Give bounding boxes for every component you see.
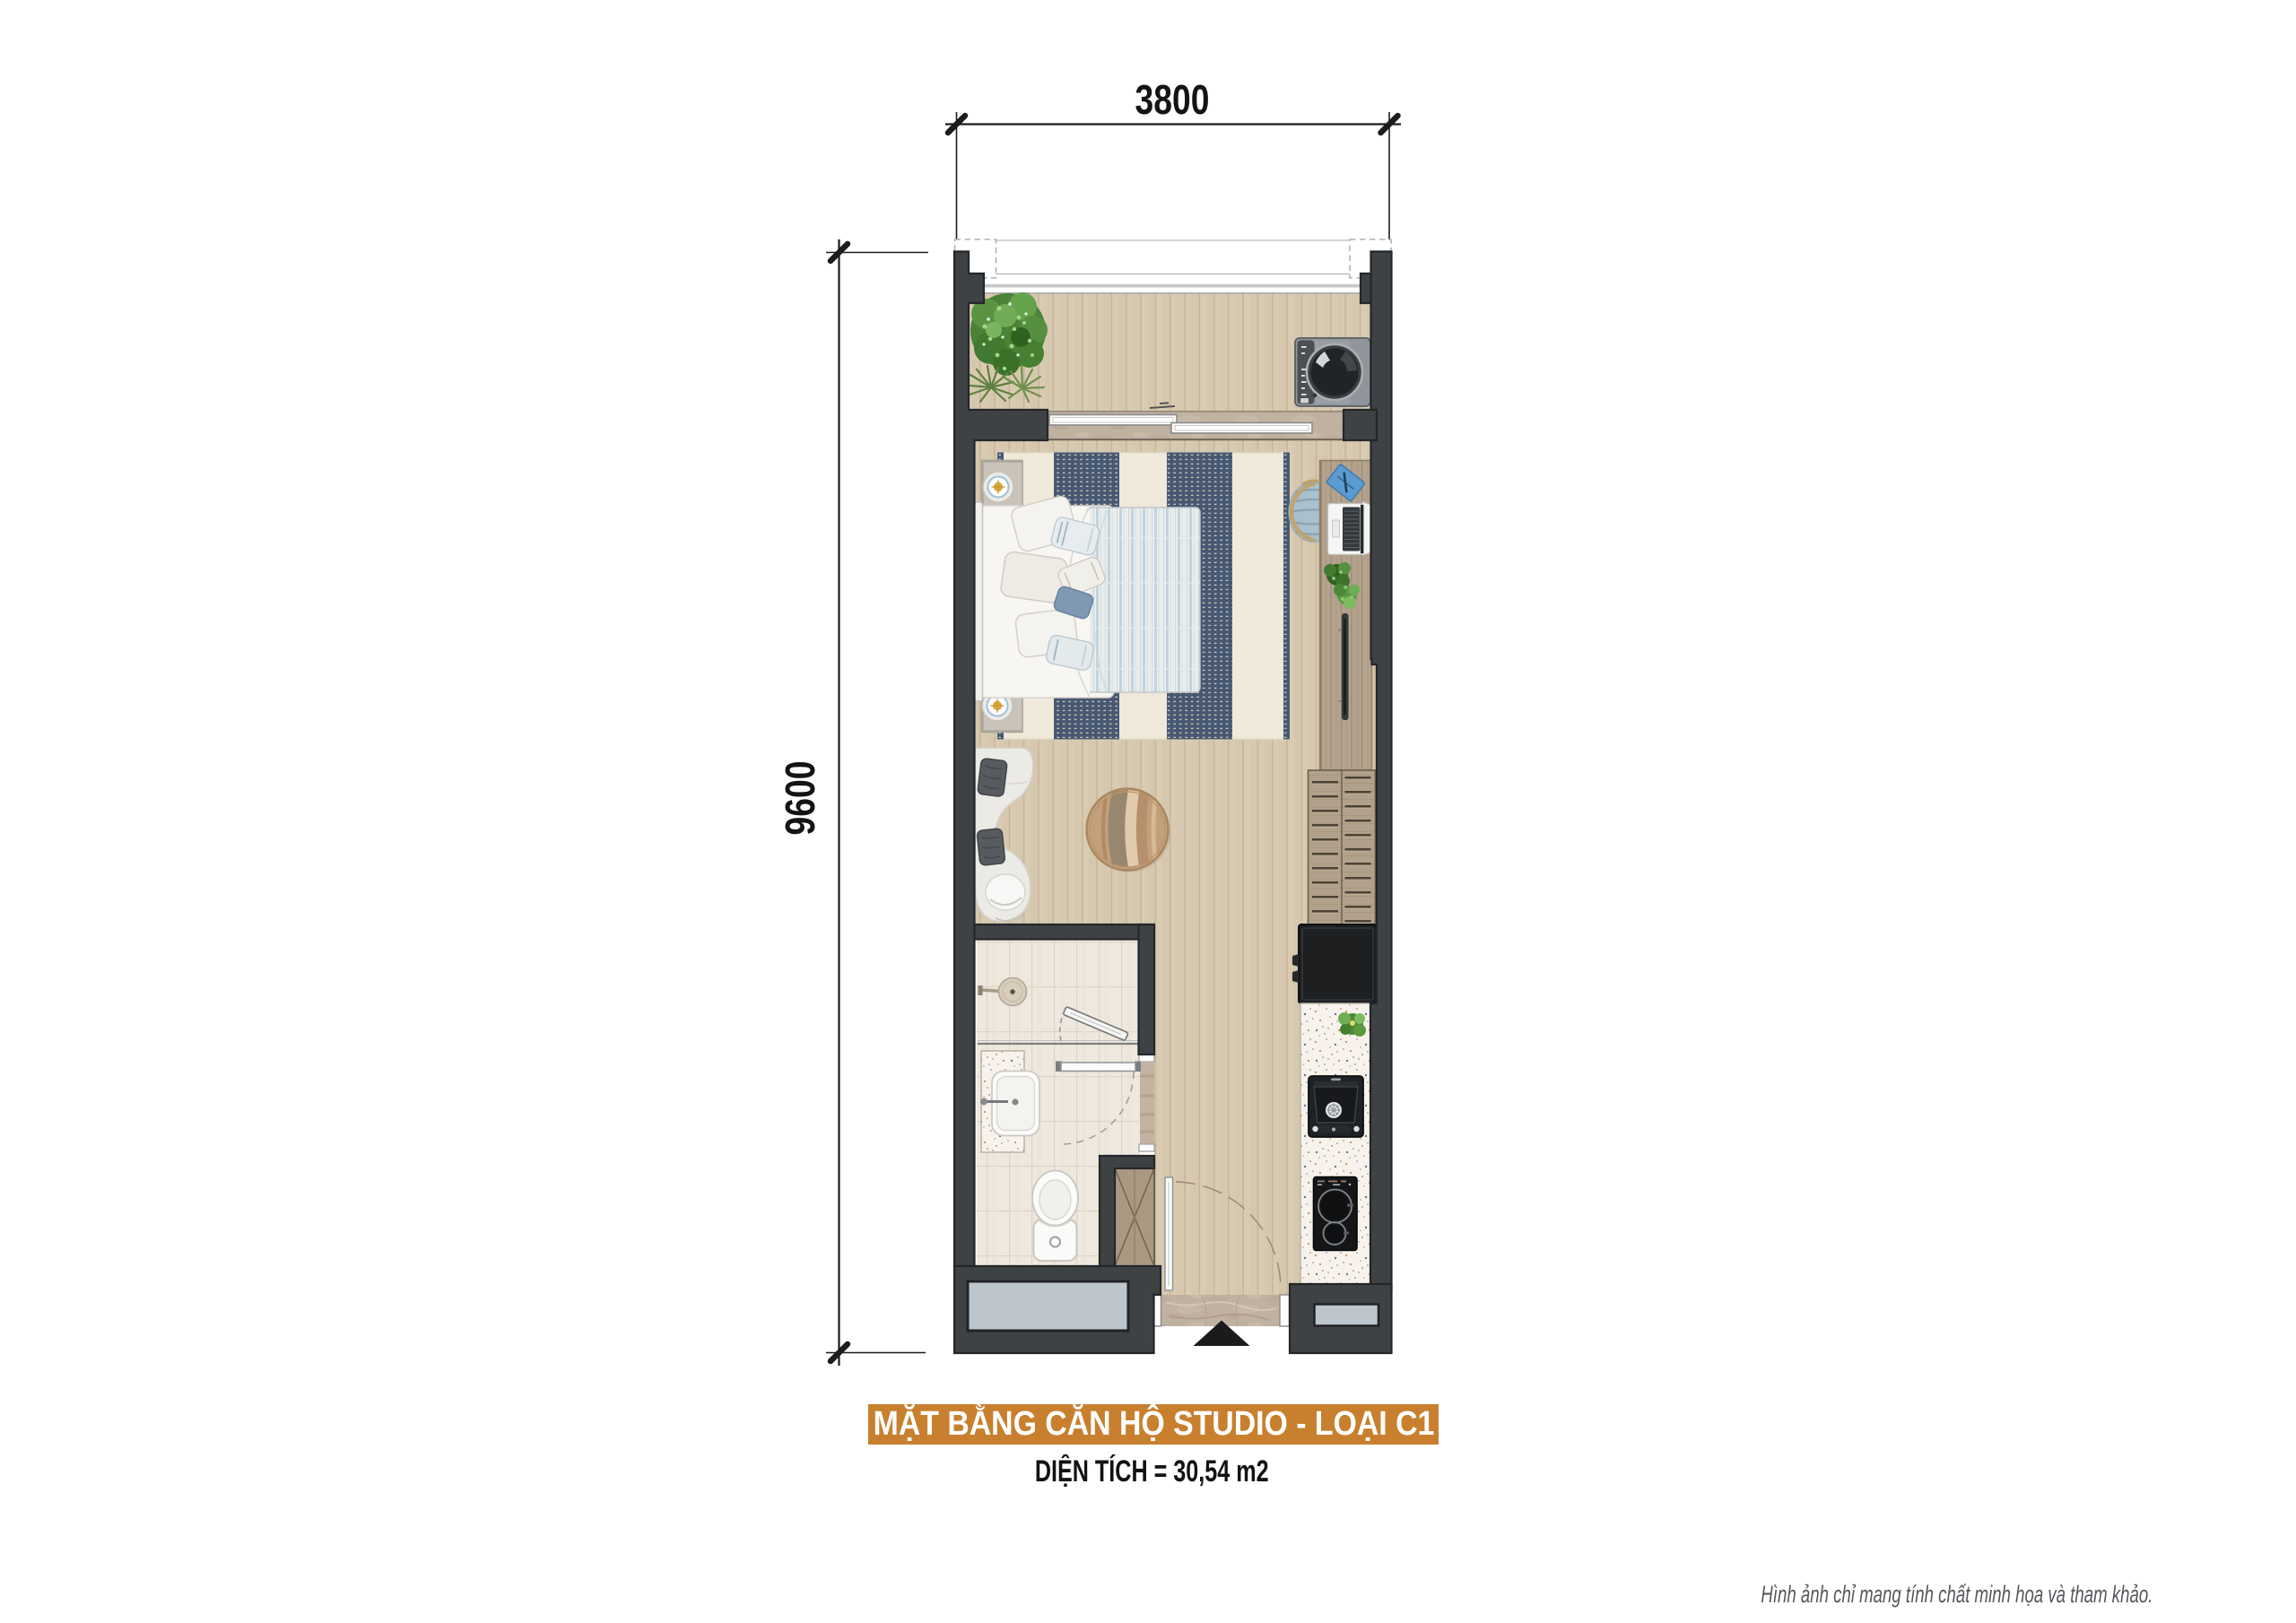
svg-text:9600: 9600 [777, 761, 823, 836]
svg-text:3800: 3800 [1135, 76, 1210, 123]
